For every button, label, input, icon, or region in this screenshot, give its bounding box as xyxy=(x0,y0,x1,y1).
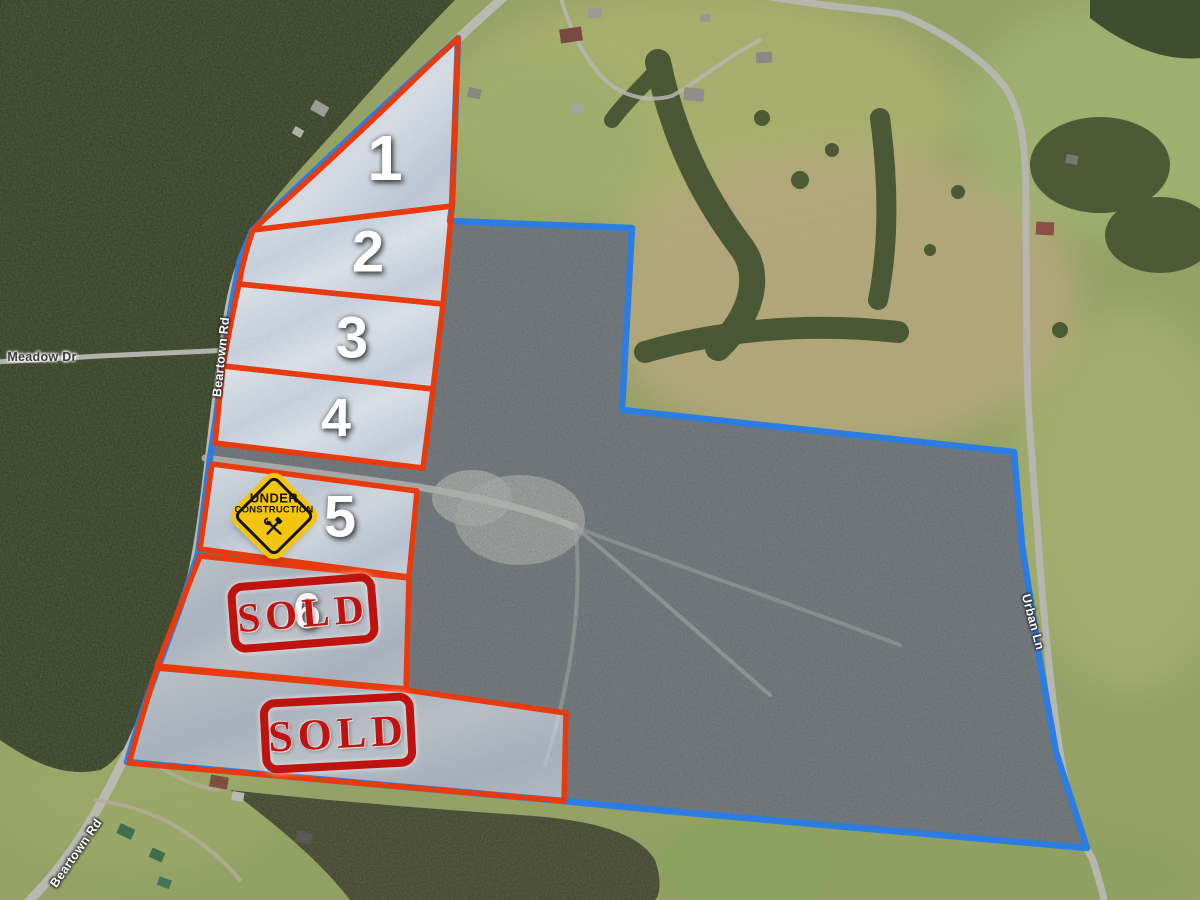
lot-number-4: 4 xyxy=(321,387,351,449)
lot-number-5: 5 xyxy=(324,484,356,551)
lot-number-1: 1 xyxy=(367,121,403,195)
aerial-map: 1 2 3 4 5 6 UNDER CONSTRUCTION SOLD xyxy=(0,0,1200,900)
sold-stamp-1: SOLD xyxy=(226,572,379,653)
tools-icon xyxy=(228,516,320,541)
sign-line-2: CONSTRUCTION xyxy=(228,505,320,515)
satellite-imagery xyxy=(0,0,1200,900)
road-label-meadow-dr: Meadow Dr xyxy=(7,350,76,364)
lot-number-2: 2 xyxy=(352,219,384,286)
sold-stamp-1-label: SOLD xyxy=(235,584,370,642)
sign-line-1: UNDER xyxy=(228,491,320,505)
sold-stamp-2-label: SOLD xyxy=(267,704,409,762)
under-construction-sign-content: UNDER CONSTRUCTION xyxy=(228,491,320,540)
lot-number-3: 3 xyxy=(336,305,368,372)
sold-stamp-2: SOLD xyxy=(259,692,417,774)
